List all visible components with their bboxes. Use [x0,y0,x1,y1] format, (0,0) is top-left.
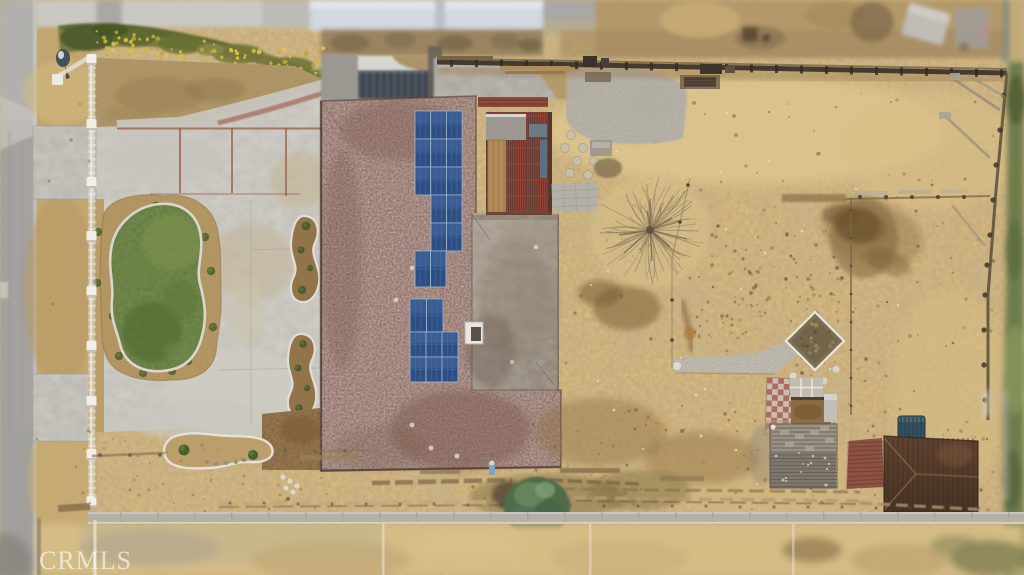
svg-text:CRMLS: CRMLS [39,546,132,575]
